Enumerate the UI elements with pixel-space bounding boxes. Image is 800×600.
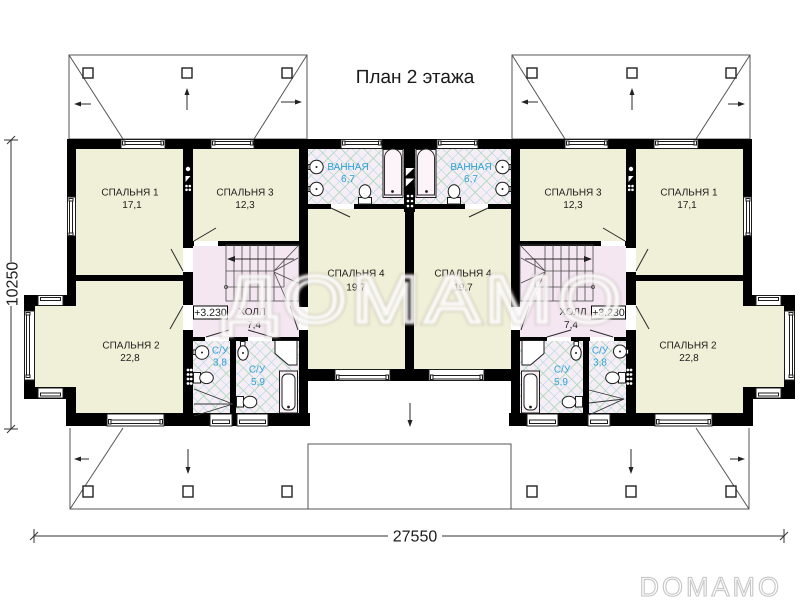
svg-text:3,8: 3,8 bbox=[593, 358, 607, 369]
svg-text:3,8: 3,8 bbox=[213, 358, 227, 369]
svg-text:С/У: С/У bbox=[212, 346, 229, 357]
svg-text:СПАЛЬНЯ 3: СПАЛЬНЯ 3 bbox=[544, 188, 602, 199]
svg-text:С/У: С/У bbox=[249, 365, 266, 376]
svg-text:СПАЛЬНЯ 2: СПАЛЬНЯ 2 bbox=[659, 341, 717, 352]
svg-text:ВАННАЯ: ВАННАЯ bbox=[450, 162, 491, 173]
svg-text:10250: 10250 bbox=[5, 262, 22, 307]
svg-text:С/У: С/У bbox=[592, 346, 609, 357]
svg-text:6,7: 6,7 bbox=[464, 174, 478, 185]
svg-text:5,9: 5,9 bbox=[554, 377, 568, 388]
svg-text:СПАЛЬНЯ 2: СПАЛЬНЯ 2 bbox=[102, 341, 160, 352]
svg-text:С/У: С/У bbox=[554, 365, 571, 376]
svg-text:ДОМАМО: ДОМАМО bbox=[223, 262, 627, 336]
svg-text:17,1: 17,1 bbox=[677, 200, 697, 211]
svg-text:План 2 этажа: План 2 этажа bbox=[356, 67, 475, 88]
svg-text:DOMAMO: DOMAMO bbox=[640, 572, 783, 600]
svg-text:ВАННАЯ: ВАННАЯ bbox=[327, 162, 368, 173]
svg-text:17,1: 17,1 bbox=[122, 200, 142, 211]
svg-text:22,8: 22,8 bbox=[120, 353, 140, 364]
svg-text:СПАЛЬНЯ 1: СПАЛЬНЯ 1 bbox=[660, 188, 718, 199]
svg-text:27550: 27550 bbox=[393, 529, 438, 546]
svg-text:6,7: 6,7 bbox=[341, 174, 355, 185]
svg-text:12,3: 12,3 bbox=[563, 200, 583, 211]
svg-text:5,9: 5,9 bbox=[251, 377, 265, 388]
svg-text:22,8: 22,8 bbox=[679, 353, 699, 364]
svg-text:СПАЛЬНЯ 3: СПАЛЬНЯ 3 bbox=[216, 188, 274, 199]
svg-text:+3.230: +3.230 bbox=[194, 307, 227, 319]
svg-text:12,3: 12,3 bbox=[235, 200, 255, 211]
svg-text:СПАЛЬНЯ 1: СПАЛЬНЯ 1 bbox=[101, 188, 159, 199]
